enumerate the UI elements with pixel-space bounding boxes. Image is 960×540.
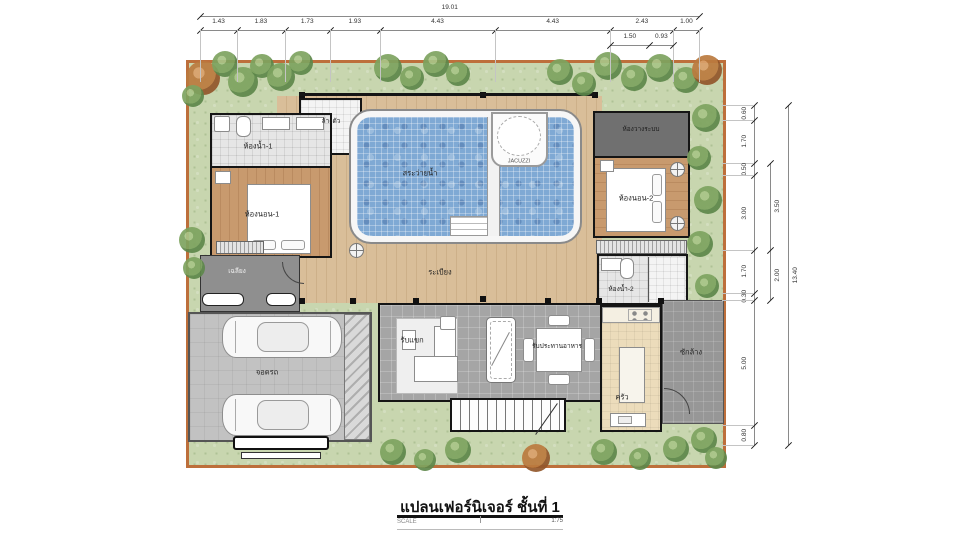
house-top-wall bbox=[299, 93, 595, 96]
tree-green bbox=[289, 51, 313, 75]
dim-label: 0.50 bbox=[742, 154, 749, 184]
bath1-sink-left bbox=[262, 117, 290, 130]
column bbox=[299, 298, 305, 304]
tree-green bbox=[572, 72, 596, 96]
label-terrace: ระเบียง bbox=[428, 268, 451, 276]
scale-label: SCALE bbox=[397, 519, 417, 525]
driveway-step-outer bbox=[233, 436, 329, 450]
car-trunk-line bbox=[235, 399, 236, 431]
label-bath2: ห้องน้ำ-2 bbox=[608, 287, 633, 294]
porch-bench-right bbox=[266, 293, 296, 306]
label-bed1: ห้องนอน-1 bbox=[245, 210, 280, 218]
scale-underline bbox=[397, 529, 563, 530]
dim-label: 1.50 bbox=[615, 34, 645, 41]
tree-green bbox=[179, 227, 205, 253]
label-dining: รับประทานอาหาร bbox=[532, 344, 582, 351]
tree-green bbox=[694, 186, 722, 214]
dim-label: 1.43 bbox=[204, 19, 234, 26]
tree-green bbox=[663, 436, 689, 462]
bed2-hall-mat bbox=[596, 240, 687, 254]
jacuzzi-circle bbox=[497, 116, 541, 156]
tree-green bbox=[374, 54, 402, 82]
dim-label: 0.93 bbox=[646, 34, 676, 41]
bed2-vent-bottom bbox=[670, 216, 685, 231]
tree-green bbox=[380, 439, 406, 465]
dim-extension bbox=[722, 293, 754, 294]
label-porch: เฉลียง bbox=[228, 269, 246, 276]
garage-walkway bbox=[344, 314, 370, 440]
tree-orange bbox=[522, 444, 550, 472]
dining-chair-right bbox=[584, 338, 595, 362]
dim-label: 4.43 bbox=[423, 19, 453, 26]
dim-extension bbox=[285, 30, 286, 82]
dim-extension bbox=[722, 120, 754, 121]
scale-tick bbox=[480, 516, 481, 523]
dim-extension bbox=[722, 105, 754, 106]
tree-green bbox=[646, 54, 674, 82]
dim-top-line bbox=[200, 30, 699, 31]
deck-vent bbox=[349, 243, 364, 258]
dim-extension bbox=[495, 30, 496, 82]
bed2-nightstand bbox=[600, 160, 614, 172]
label-jacuzzi: JACUZZI bbox=[508, 159, 531, 165]
dim-top-total-line bbox=[200, 16, 699, 17]
floor-plan-canvas: ห้องน้ำ-1 ห้องนอน-1 ล้างตัว สระว่ายน้ำ J… bbox=[0, 0, 960, 540]
dim-tick bbox=[767, 297, 774, 304]
dim-tick bbox=[785, 442, 792, 449]
scale-value: 1:75 bbox=[551, 518, 563, 524]
label-bed2: ห้องนอน-2 bbox=[619, 194, 654, 202]
dim-label: 5.00 bbox=[742, 348, 749, 378]
tree-green bbox=[692, 104, 720, 132]
kitchen-stove bbox=[628, 309, 652, 321]
tree-green bbox=[705, 447, 727, 469]
column bbox=[545, 298, 551, 304]
dim-label: 4.43 bbox=[538, 19, 568, 26]
label-bath1: ห้องน้ำ-1 bbox=[243, 142, 272, 150]
dim-extension bbox=[722, 425, 754, 426]
kitchen-sink-basin bbox=[618, 416, 632, 424]
tree-green bbox=[591, 439, 617, 465]
tree-green bbox=[400, 66, 424, 90]
tree-green bbox=[445, 437, 471, 463]
car-top bbox=[222, 316, 342, 358]
dim-label: 1.00 bbox=[671, 19, 701, 26]
pool-table-inner bbox=[490, 321, 512, 379]
tree-green bbox=[687, 231, 713, 257]
dim-label: 13.40 bbox=[793, 260, 800, 290]
bath2-wet-zone bbox=[648, 257, 685, 302]
dim-label: 3.50 bbox=[775, 192, 782, 222]
dim-top-sub-line bbox=[610, 45, 673, 46]
bath1-shower-tray bbox=[214, 116, 230, 132]
dim-extension bbox=[380, 30, 381, 82]
tree-green bbox=[182, 85, 204, 107]
label-kitchen: ครัว bbox=[615, 393, 628, 401]
tree-orange bbox=[692, 55, 722, 85]
car-trunk-line bbox=[235, 321, 236, 353]
sofa-horizontal bbox=[414, 356, 458, 382]
dim-extension bbox=[722, 175, 754, 176]
dim-extension bbox=[330, 30, 331, 82]
pool-steps bbox=[450, 216, 488, 236]
bed1-rug bbox=[216, 241, 264, 254]
dim-extension bbox=[722, 445, 754, 446]
dim-right-total-line bbox=[788, 105, 789, 445]
car-hood-line bbox=[330, 399, 331, 431]
label-laundry: ซักล้าง bbox=[680, 348, 702, 356]
bed2-pillow-bottom bbox=[652, 201, 662, 223]
tree-green bbox=[695, 274, 719, 298]
tree-green bbox=[687, 146, 711, 170]
scale-row: SCALE 1:75 bbox=[397, 518, 563, 528]
car-cabin bbox=[257, 322, 309, 352]
porch-bench-left bbox=[202, 293, 244, 306]
tree-green bbox=[621, 65, 647, 91]
dim-extension bbox=[699, 30, 700, 82]
tree-green bbox=[629, 448, 651, 470]
dim-right-line bbox=[754, 105, 755, 445]
dim-extension bbox=[722, 163, 754, 164]
dim-label: 1.70 bbox=[742, 127, 749, 157]
car-hood-line bbox=[330, 321, 331, 353]
column bbox=[350, 298, 356, 304]
car-bottom bbox=[222, 394, 342, 436]
dining-chair-bottom bbox=[548, 374, 570, 385]
car-cabin bbox=[257, 400, 309, 430]
column bbox=[596, 298, 602, 304]
dim-label: 1.93 bbox=[340, 19, 370, 26]
dim-right-mid-line bbox=[770, 163, 771, 301]
dining-chair-top bbox=[548, 315, 570, 326]
bath1-toilet bbox=[236, 116, 251, 137]
label-shower: ล้างตัว bbox=[322, 119, 341, 126]
bed1-pillow-right bbox=[281, 240, 305, 250]
room-system bbox=[593, 111, 690, 158]
dim-extension bbox=[610, 30, 611, 82]
label-garage: จอดรถ bbox=[256, 368, 278, 376]
dim-label: 19.01 bbox=[435, 5, 465, 12]
tree-green bbox=[414, 449, 436, 471]
bath1-sink-right bbox=[296, 117, 324, 130]
label-pool: สระว่ายน้ำ bbox=[403, 169, 438, 177]
dim-label: 2.00 bbox=[775, 260, 782, 290]
dim-extension bbox=[722, 300, 754, 301]
dim-label: 0.60 bbox=[742, 98, 749, 128]
label-living: รับแขก bbox=[400, 336, 423, 344]
dim-label: 2.43 bbox=[627, 19, 657, 26]
column bbox=[413, 298, 419, 304]
dim-extension bbox=[722, 250, 754, 251]
tree-green bbox=[183, 257, 205, 279]
tree-green bbox=[547, 59, 573, 85]
dim-extension bbox=[237, 30, 238, 82]
column bbox=[658, 298, 664, 304]
bath2-sink bbox=[601, 258, 622, 271]
dim-label: 3.00 bbox=[742, 198, 749, 228]
bed2-pillow-top bbox=[652, 174, 662, 196]
bed1-nightstand bbox=[215, 171, 231, 184]
bed2-vent-top bbox=[670, 162, 685, 177]
driveway-step-inner bbox=[241, 452, 321, 459]
tree-green bbox=[446, 62, 470, 86]
tree-green bbox=[594, 52, 622, 80]
dim-extension bbox=[200, 30, 201, 82]
column bbox=[480, 296, 486, 302]
label-system: ห้องวางระบบ bbox=[622, 127, 659, 134]
dim-label: 1.73 bbox=[292, 19, 322, 26]
bath2-toilet bbox=[620, 258, 634, 279]
dim-label: 0.30 bbox=[742, 282, 749, 312]
dim-label: 1.83 bbox=[246, 19, 276, 26]
ac-unit bbox=[440, 316, 456, 330]
